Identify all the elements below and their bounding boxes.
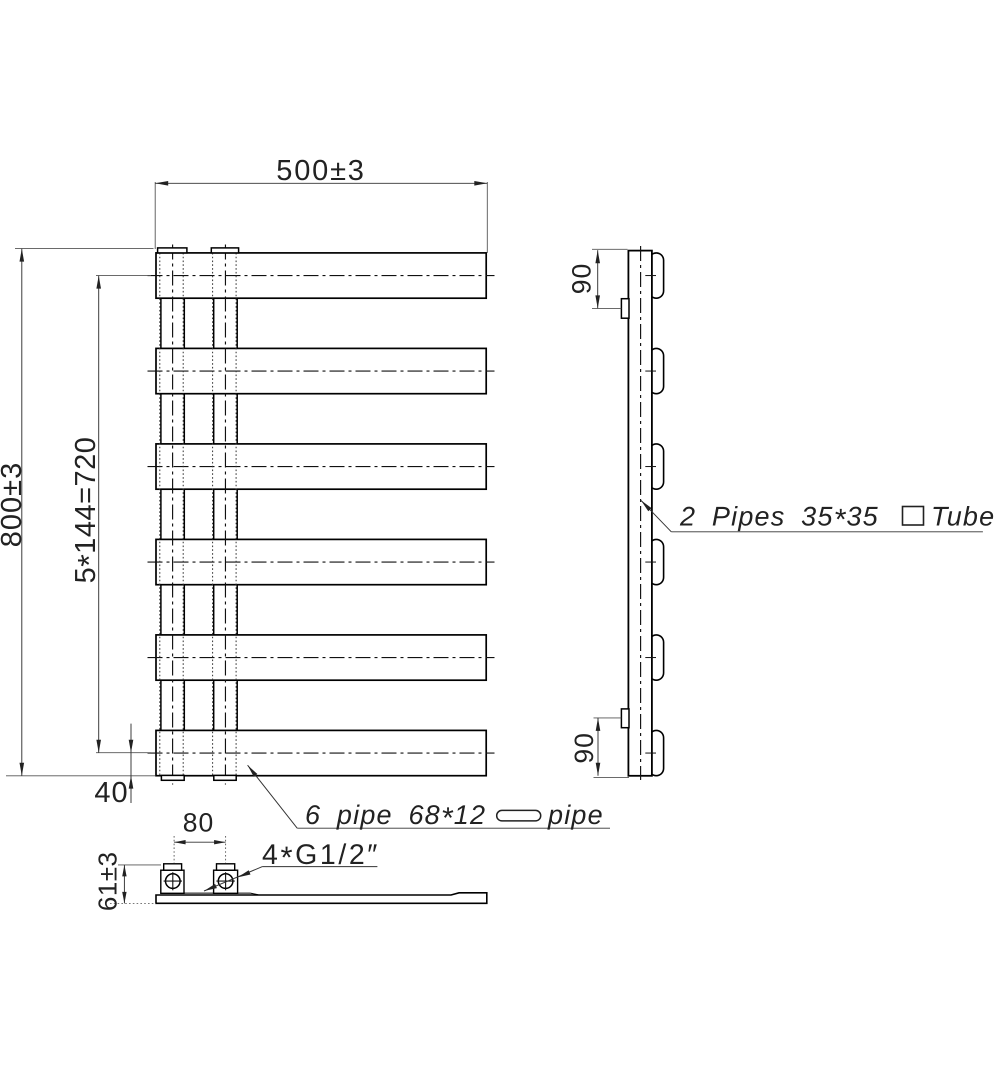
svg-text:2 Pipes 35*35: 2 Pipes 35*35 (679, 502, 879, 537)
svg-text:5*144=720: 5*144=720 (70, 437, 107, 584)
svg-text:40: 40 (94, 777, 128, 809)
svg-text:80: 80 (183, 808, 214, 838)
svg-text:90: 90 (567, 263, 597, 294)
svg-text:800±3: 800±3 (0, 462, 28, 547)
svg-text:90: 90 (569, 732, 599, 763)
svg-text:61±3: 61±3 (93, 851, 123, 911)
svg-text:4*G1/2″: 4*G1/2″ (262, 839, 380, 875)
svg-text:500±3: 500±3 (276, 155, 365, 187)
svg-text:Tube: Tube (931, 502, 995, 532)
svg-text:6 pipe 68*12: 6 pipe 68*12 (305, 800, 486, 835)
svg-text:pipe: pipe (547, 800, 604, 830)
